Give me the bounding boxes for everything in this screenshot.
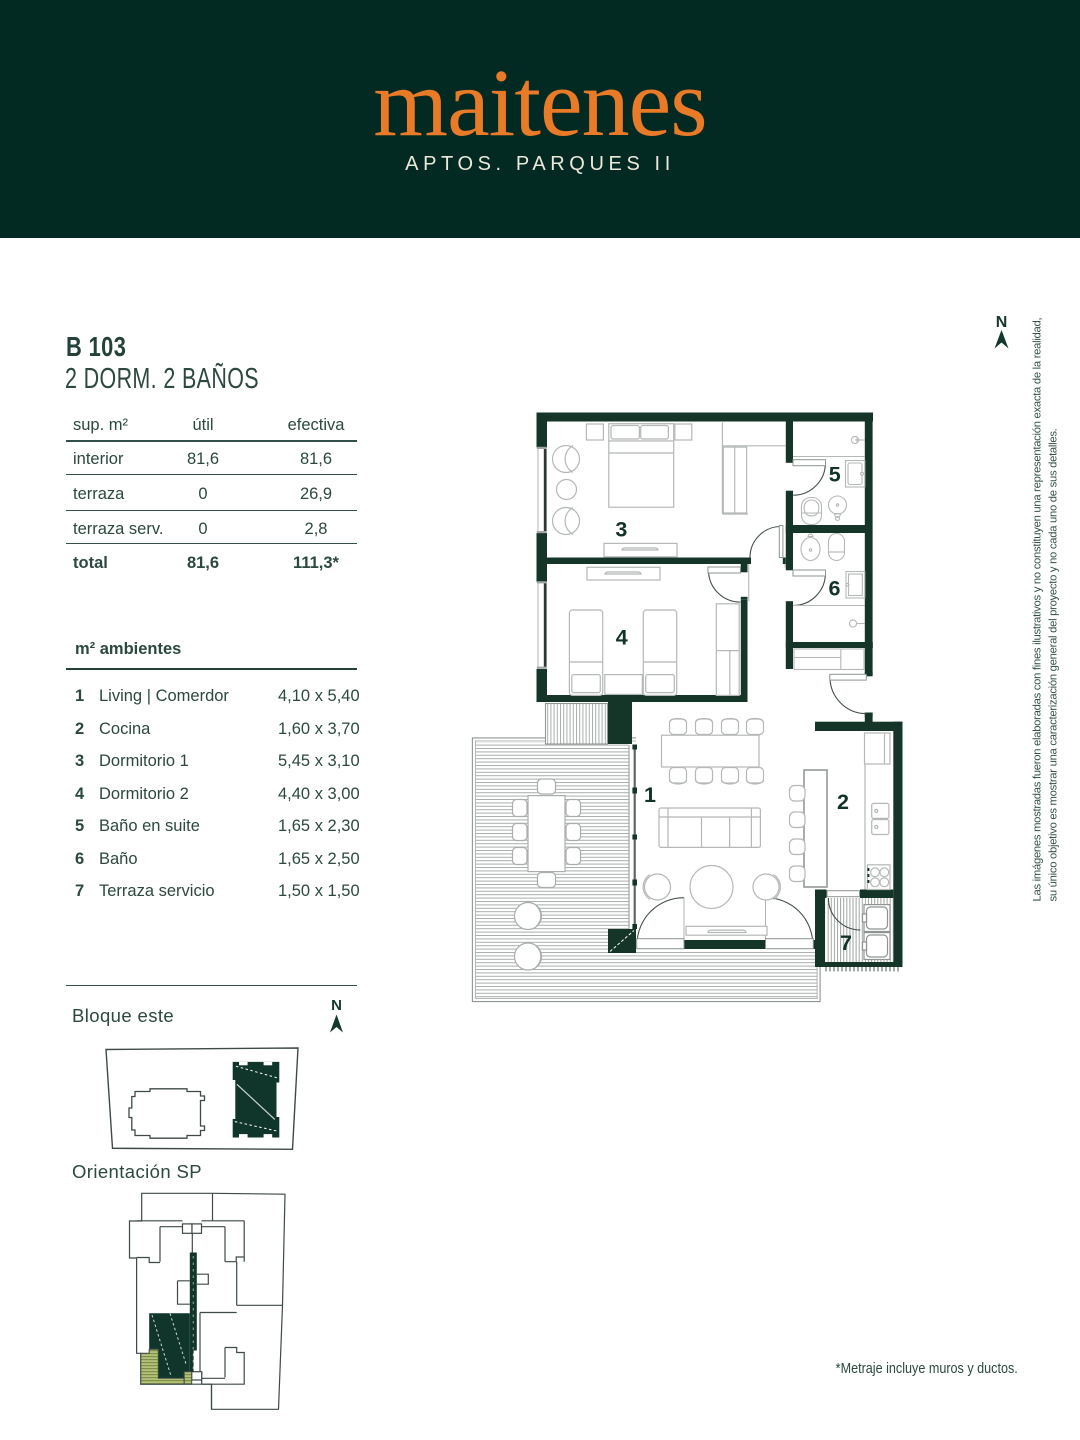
svg-text:2: 2 [837, 790, 849, 814]
svg-text:5: 5 [829, 463, 841, 487]
svg-text:N: N [996, 314, 1008, 331]
svg-text:1: 1 [644, 783, 656, 807]
svg-text:6: 6 [829, 577, 841, 601]
svg-text:7: 7 [840, 931, 852, 955]
svg-text:3: 3 [615, 518, 627, 542]
svg-text:4: 4 [616, 626, 628, 650]
svg-text:N: N [331, 997, 342, 1014]
